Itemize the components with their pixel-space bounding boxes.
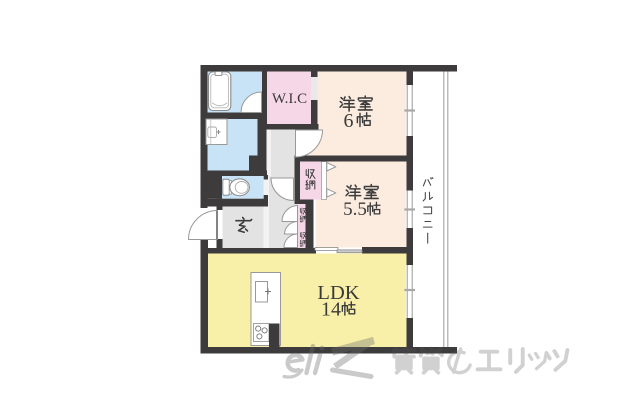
svg-text:5.5: 5.5 [343,199,367,220]
svg-text:14: 14 [321,299,341,321]
svg-text:6: 6 [344,110,354,132]
svg-text:W.I.C: W.I.C [272,91,307,107]
